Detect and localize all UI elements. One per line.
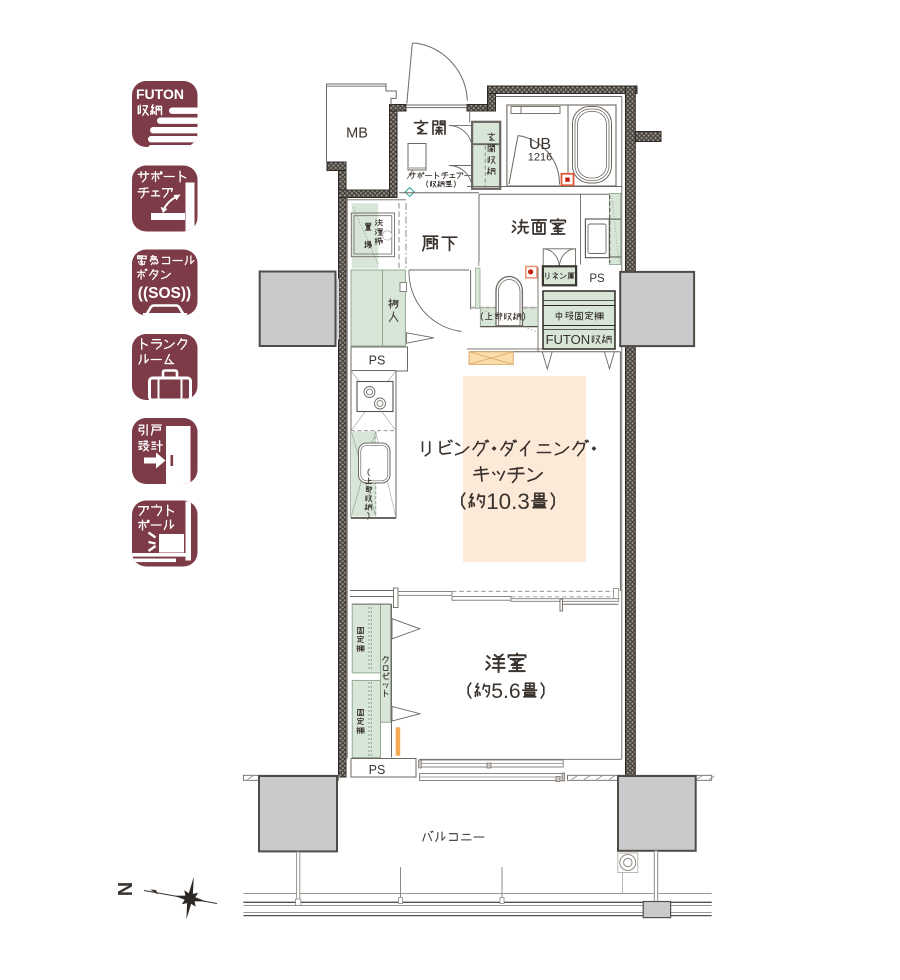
svg-text:N: N xyxy=(115,882,137,896)
svg-text:1216: 1216 xyxy=(528,152,552,164)
svg-text:FUTON: FUTON xyxy=(546,332,591,347)
svg-text:MB: MB xyxy=(346,126,368,142)
svg-text:PS: PS xyxy=(369,353,386,367)
svg-text:((SOS)): ((SOS)) xyxy=(138,285,191,302)
svg-text:FUTON: FUTON xyxy=(136,86,184,102)
svg-text:PS: PS xyxy=(369,763,386,777)
svg-text:UB: UB xyxy=(529,136,551,153)
svg-text:PS: PS xyxy=(589,273,605,285)
svg-text:10.3: 10.3 xyxy=(486,489,530,514)
svg-text:5.6: 5.6 xyxy=(491,680,520,703)
